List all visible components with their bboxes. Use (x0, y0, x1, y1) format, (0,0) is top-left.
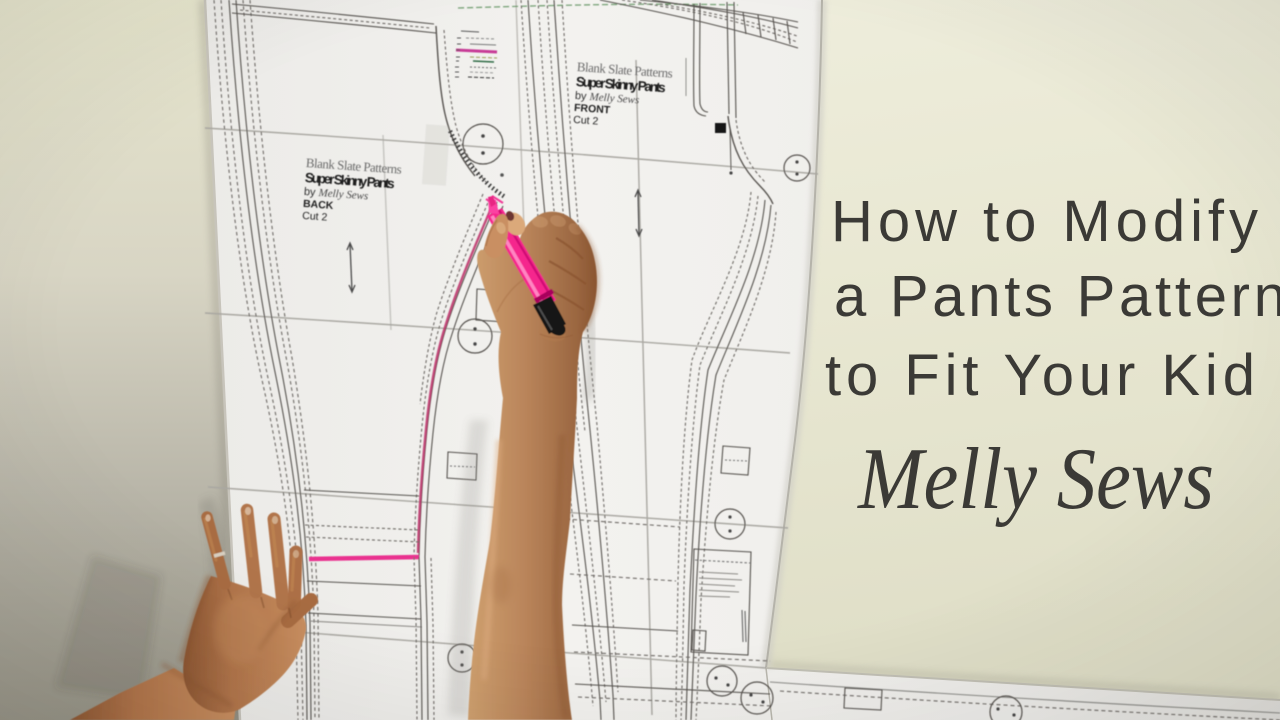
svg-text:Melly Sews: Melly Sews (856, 431, 1214, 528)
svg-text:a Pants Pattern: a Pants Pattern (834, 264, 1280, 329)
svg-text:How to Modify: How to Modify (831, 189, 1258, 254)
